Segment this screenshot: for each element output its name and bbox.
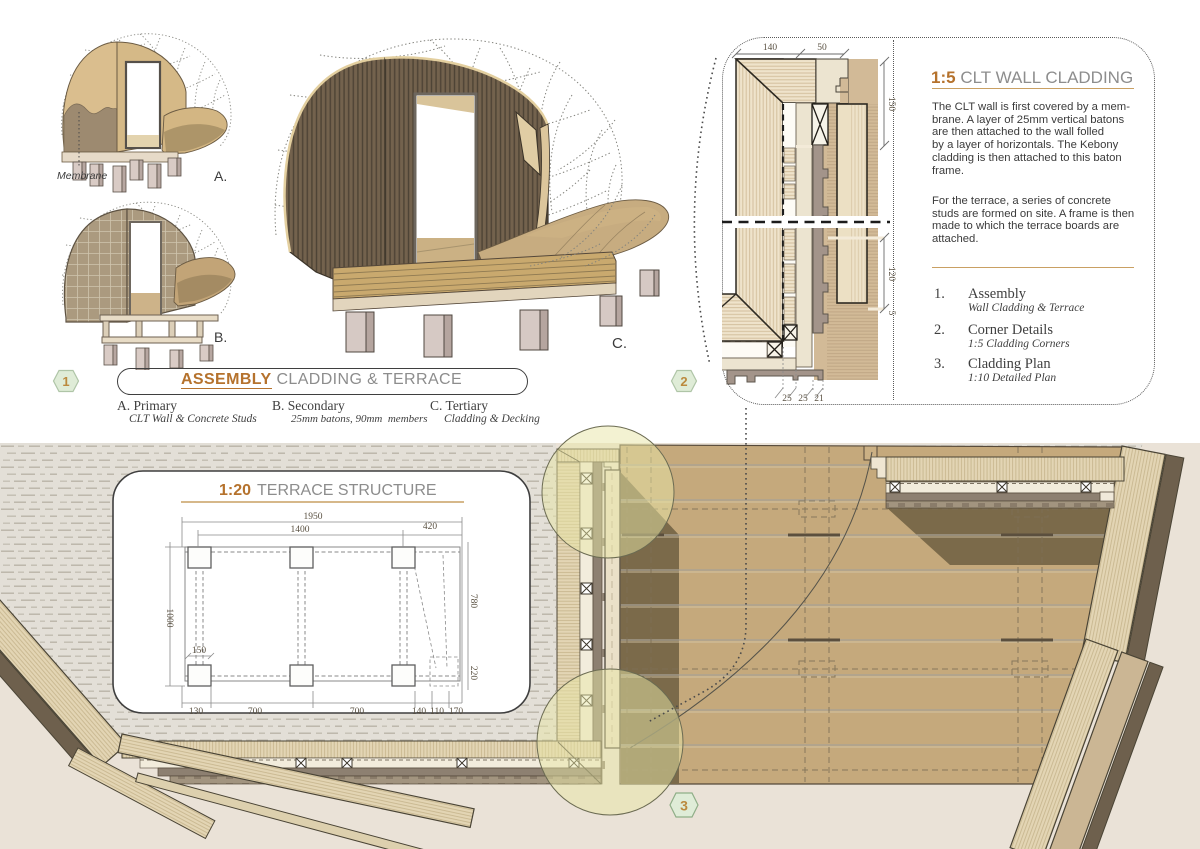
svg-text:21: 21 — [814, 394, 824, 403]
svg-text:A.: A. — [214, 168, 227, 184]
svg-text:Membrane: Membrane — [57, 170, 107, 182]
svg-text:150: 150 — [886, 97, 896, 112]
svg-text:25: 25 — [782, 394, 792, 403]
svg-text:1: 1 — [62, 374, 69, 389]
svg-text:5: 5 — [886, 311, 896, 316]
svg-text:140: 140 — [763, 43, 778, 53]
svg-text:25: 25 — [798, 394, 808, 403]
svg-text:2: 2 — [680, 374, 687, 389]
svg-text:50: 50 — [817, 43, 827, 53]
svg-text:C.: C. — [612, 335, 627, 352]
svg-text:3: 3 — [680, 798, 688, 814]
svg-text:120: 120 — [886, 267, 896, 282]
svg-text:B.: B. — [214, 329, 227, 345]
